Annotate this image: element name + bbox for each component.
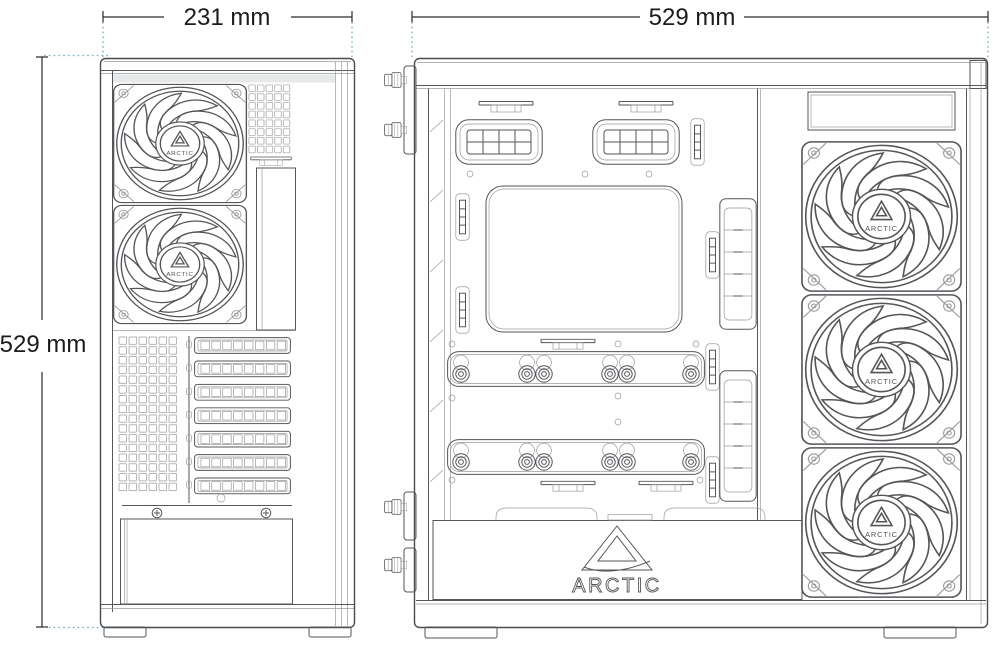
pci-slot-column	[187, 336, 291, 503]
cpu-cutout	[486, 186, 682, 332]
pci-slot	[195, 361, 291, 377]
side-width-label: 529 mm	[649, 4, 736, 31]
dimensional-drawing: ARCTIC	[0, 0, 1000, 646]
psu-shroud: ARCTIC	[433, 508, 802, 600]
arctic-logo-icon	[582, 526, 652, 571]
drawing-canvas: ARCTIC	[0, 0, 1000, 646]
clip-bracket	[541, 339, 595, 349]
clip-bracket	[619, 102, 673, 113]
case-foot	[104, 627, 146, 637]
drive-rail	[448, 352, 705, 387]
pci-slot	[195, 455, 291, 471]
front-fan-3	[802, 448, 961, 597]
front-fan-1	[802, 142, 961, 291]
cable-tie-point	[456, 194, 469, 240]
rear-width-label: 231 mm	[184, 4, 271, 31]
front-fan-2	[802, 295, 961, 444]
clip-bracket	[639, 481, 693, 491]
cable-tie-point	[706, 457, 719, 503]
motherboard-tray	[448, 89, 761, 521]
front-panel-edge	[967, 62, 982, 624]
side-view: ARCTIC	[385, 59, 988, 639]
pci-slot	[195, 384, 291, 400]
case-foot	[309, 627, 351, 637]
rear-height-label: 529 mm	[0, 331, 86, 358]
top-rail-end-cap	[970, 61, 986, 89]
case-foot	[425, 627, 497, 638]
cable-tie-point	[456, 287, 469, 333]
pci-slot	[195, 431, 291, 447]
rear-vent-grid-left	[118, 336, 178, 492]
pci-slot	[195, 478, 291, 494]
cable-cover	[720, 371, 756, 501]
standoff-holes	[449, 171, 703, 483]
rear-exhaust-fan-2	[114, 205, 247, 323]
clip-bracket	[479, 102, 533, 113]
cable-grommet	[593, 120, 679, 164]
pci-slot	[195, 338, 291, 354]
clip-bracket	[541, 481, 595, 491]
thumbscrew	[385, 123, 407, 138]
rear-exhaust-fan-1	[114, 84, 247, 202]
pci-slot	[195, 408, 291, 424]
case-foot	[884, 627, 956, 638]
cable-tie-point	[706, 232, 719, 278]
arctic-wordmark: ARCTIC	[572, 575, 661, 597]
rear-vent-grid-top	[248, 84, 291, 154]
cable-tie-point	[691, 119, 704, 165]
side-width-dimension: 529 mm	[412, 4, 988, 57]
rear-top-band	[113, 75, 335, 83]
thumbscrew	[385, 558, 407, 573]
cable-tie-point	[706, 344, 719, 390]
thumbscrew	[385, 500, 407, 515]
cable-grommet	[456, 120, 542, 164]
thumbscrew	[385, 73, 407, 88]
rear-io-clip	[251, 157, 292, 165]
drive-rail	[448, 440, 705, 475]
rear-width-dimension: 231 mm	[103, 4, 352, 57]
cable-cover	[720, 199, 756, 329]
front-fan-column	[802, 92, 961, 597]
front-top-bracket	[808, 92, 955, 130]
screw-hole	[217, 494, 225, 502]
psu-cutout	[121, 508, 293, 604]
rear-view	[101, 59, 355, 638]
